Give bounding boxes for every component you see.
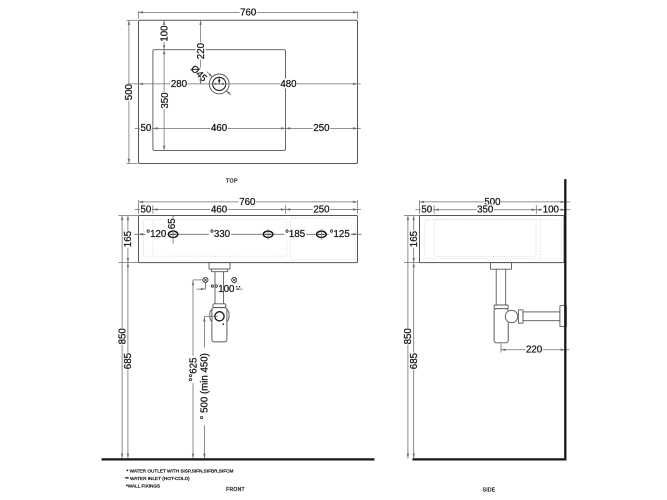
- svg-text:460: 460: [211, 204, 228, 215]
- svg-text:165: 165: [123, 231, 134, 247]
- svg-text:500: 500: [124, 84, 135, 101]
- svg-text:* WATER OUTLET WITH SISP,SIFN,: * WATER OUTLET WITH SISP,SIFN,SIFBR,SIFC…: [127, 469, 234, 474]
- svg-text:65: 65: [167, 218, 178, 229]
- svg-text:250: 250: [313, 123, 330, 134]
- svg-text:220: 220: [196, 42, 207, 59]
- svg-text:100: 100: [159, 25, 170, 42]
- svg-text:°125: °125: [330, 229, 350, 240]
- svg-text:760: 760: [240, 7, 257, 18]
- svg-text:760: 760: [239, 197, 256, 208]
- svg-text:685: 685: [123, 353, 134, 369]
- svg-text:100: 100: [543, 205, 560, 216]
- svg-text:°°625: °°625: [188, 358, 199, 382]
- svg-text:460: 460: [211, 123, 228, 134]
- svg-text:° 500 (min 450): ° 500 (min 450): [200, 353, 211, 419]
- svg-text:Ø45: Ø45: [188, 64, 209, 85]
- svg-text:50: 50: [141, 123, 152, 134]
- svg-text:°120: °120: [146, 229, 167, 240]
- svg-text:°330: °330: [210, 229, 231, 240]
- svg-text:220: 220: [526, 345, 543, 356]
- svg-text:480: 480: [280, 79, 297, 90]
- svg-text:350: 350: [477, 205, 494, 216]
- svg-text:50: 50: [141, 204, 152, 215]
- svg-text:165: 165: [409, 231, 420, 247]
- svg-text:350: 350: [160, 92, 171, 109]
- svg-text:685: 685: [409, 353, 420, 369]
- svg-text:TOP: TOP: [226, 178, 238, 184]
- svg-text:850: 850: [403, 328, 414, 345]
- svg-text:50: 50: [421, 205, 432, 216]
- svg-text:*WALL FIXINGS: *WALL FIXINGS: [126, 483, 160, 488]
- svg-text:280: 280: [171, 79, 188, 90]
- svg-text:°°100: °°100: [211, 284, 236, 295]
- svg-text:** WATER INLET (HOT-COLD): ** WATER INLET (HOT-COLD): [125, 476, 190, 481]
- svg-text:SIDE: SIDE: [483, 488, 496, 494]
- svg-text:850: 850: [117, 328, 128, 345]
- svg-text:FRONT: FRONT: [226, 487, 245, 493]
- svg-text:250: 250: [313, 204, 330, 215]
- svg-text:°185: °185: [285, 229, 305, 240]
